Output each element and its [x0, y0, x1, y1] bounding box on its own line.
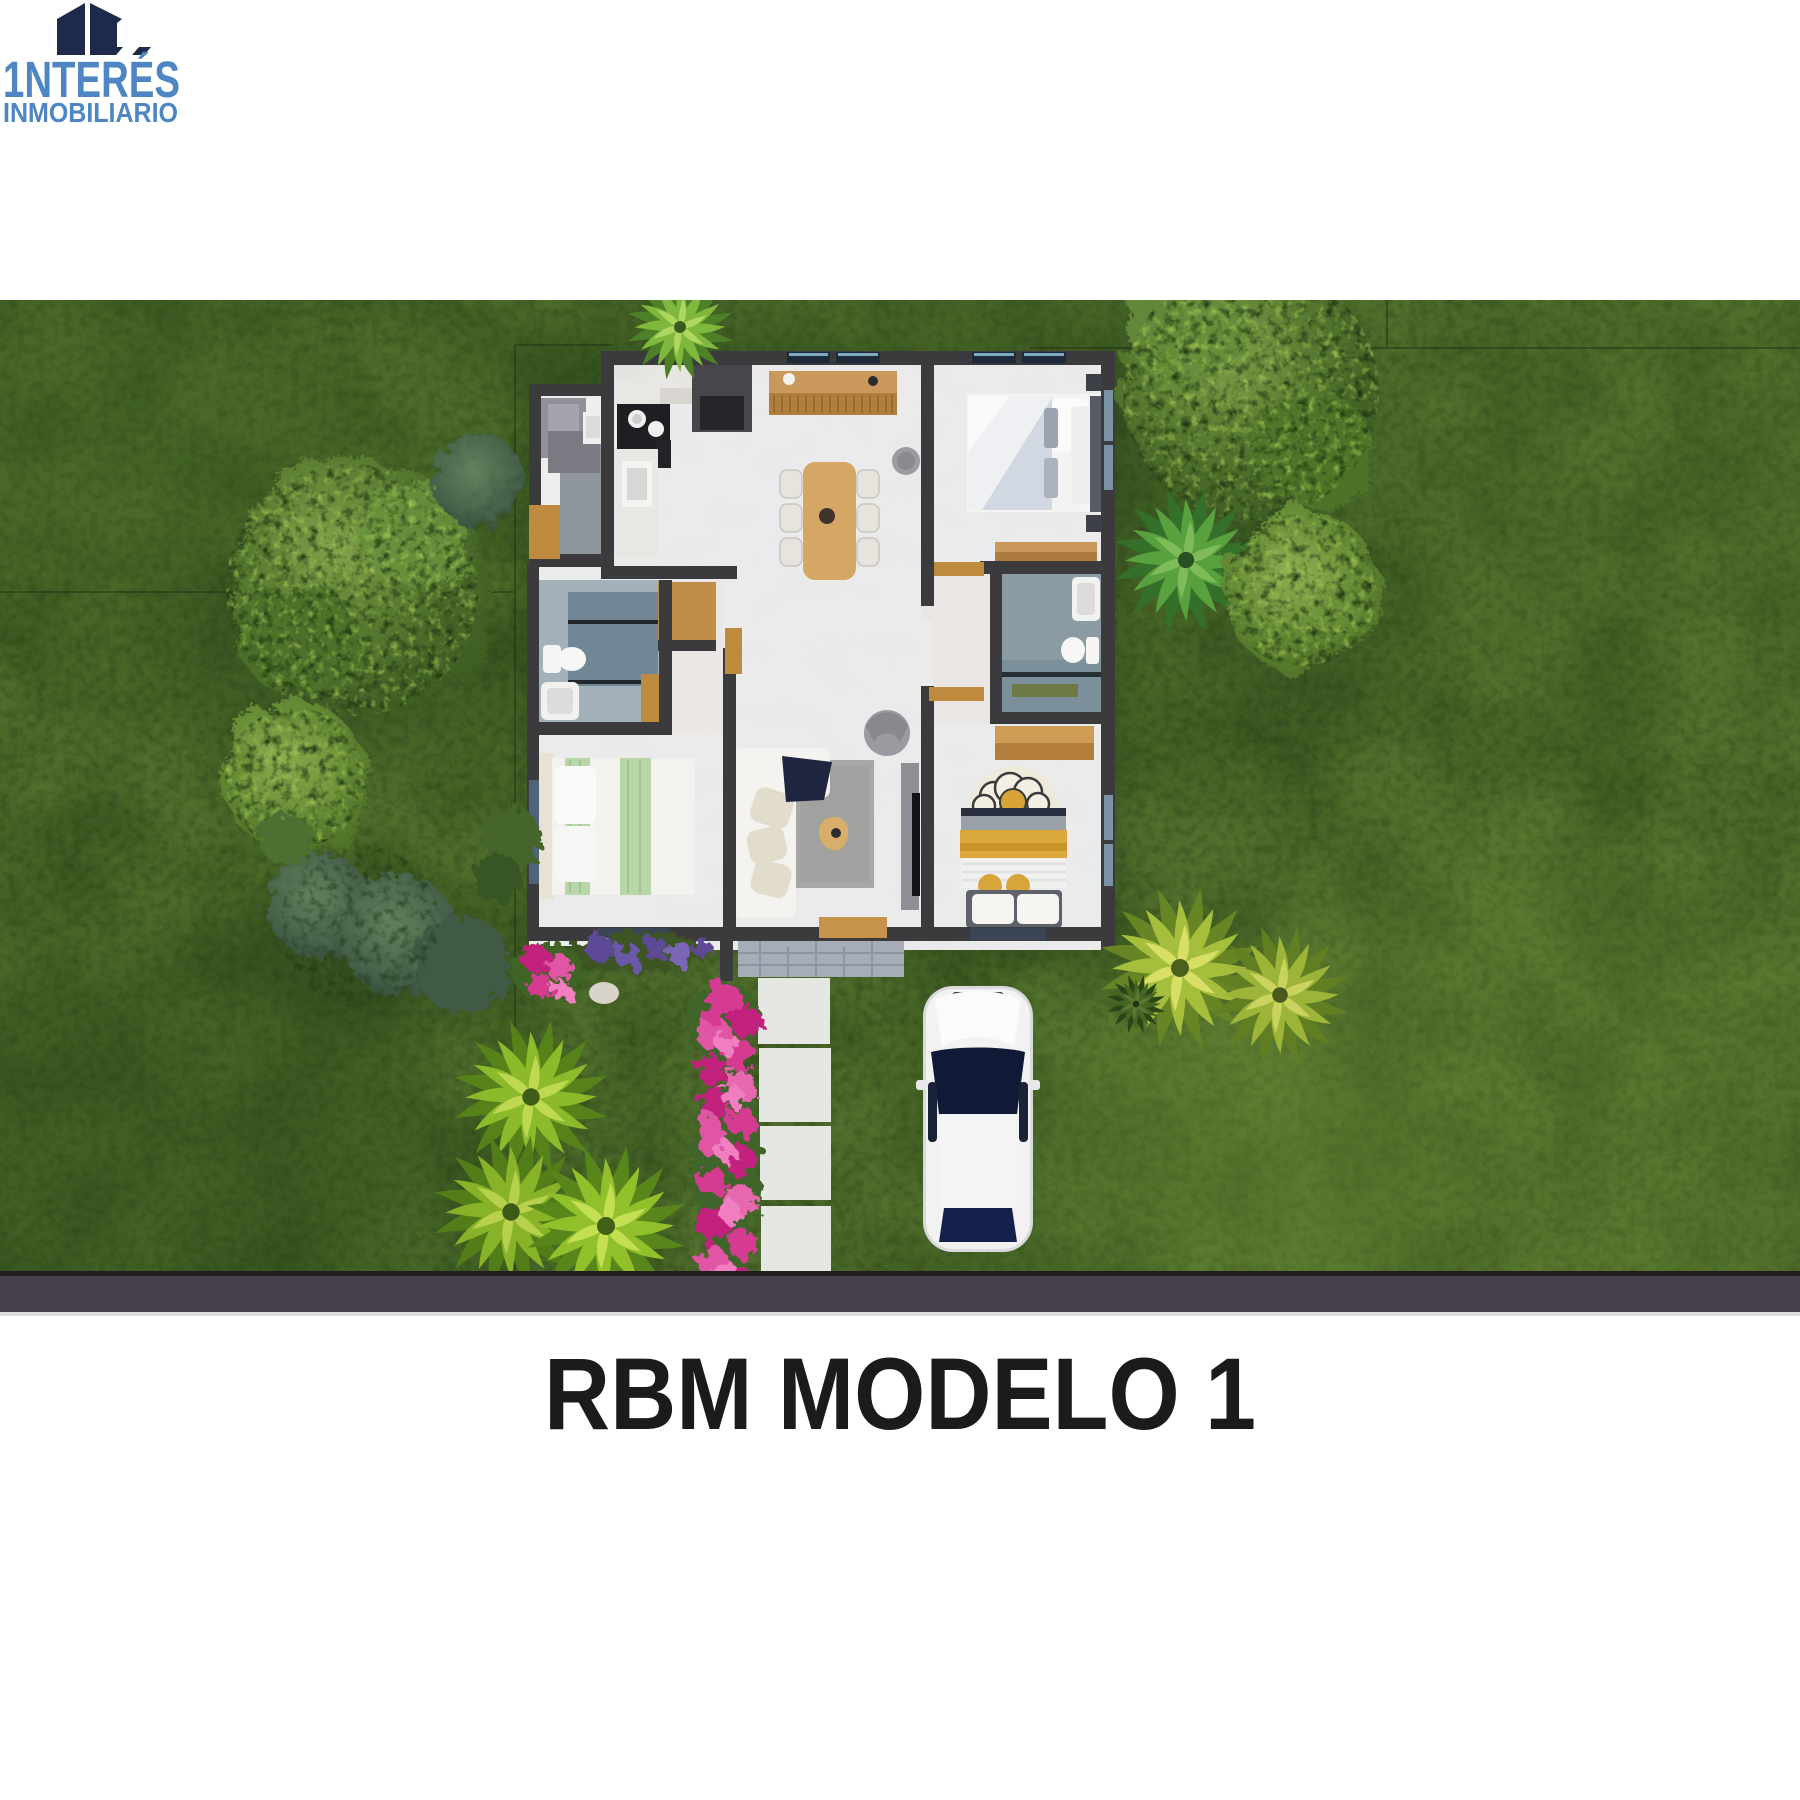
svg-text:INMOBILIARIO: INMOBILIARIO: [3, 97, 178, 128]
svg-text:RBM MODELO 1: RBM MODELO 1: [544, 1337, 1256, 1451]
